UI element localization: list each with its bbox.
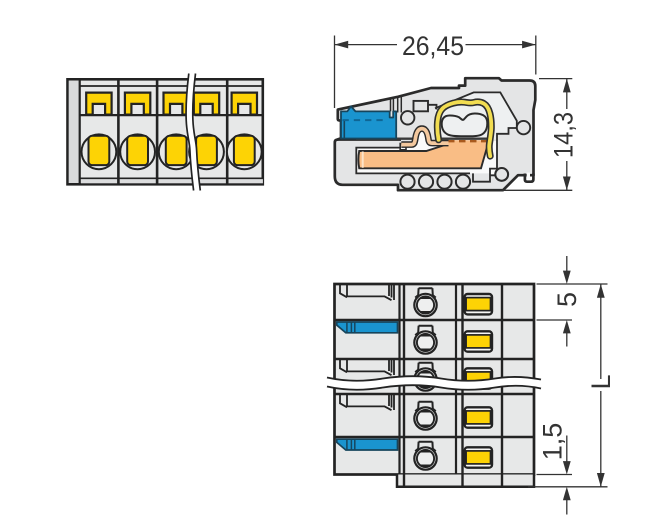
svg-text:1,5: 1,5 — [537, 423, 567, 461]
svg-text:14,3: 14,3 — [549, 112, 579, 158]
svg-text:26,45: 26,45 — [402, 31, 464, 61]
svg-text:L: L — [586, 374, 616, 389]
svg-text:5: 5 — [552, 292, 582, 307]
